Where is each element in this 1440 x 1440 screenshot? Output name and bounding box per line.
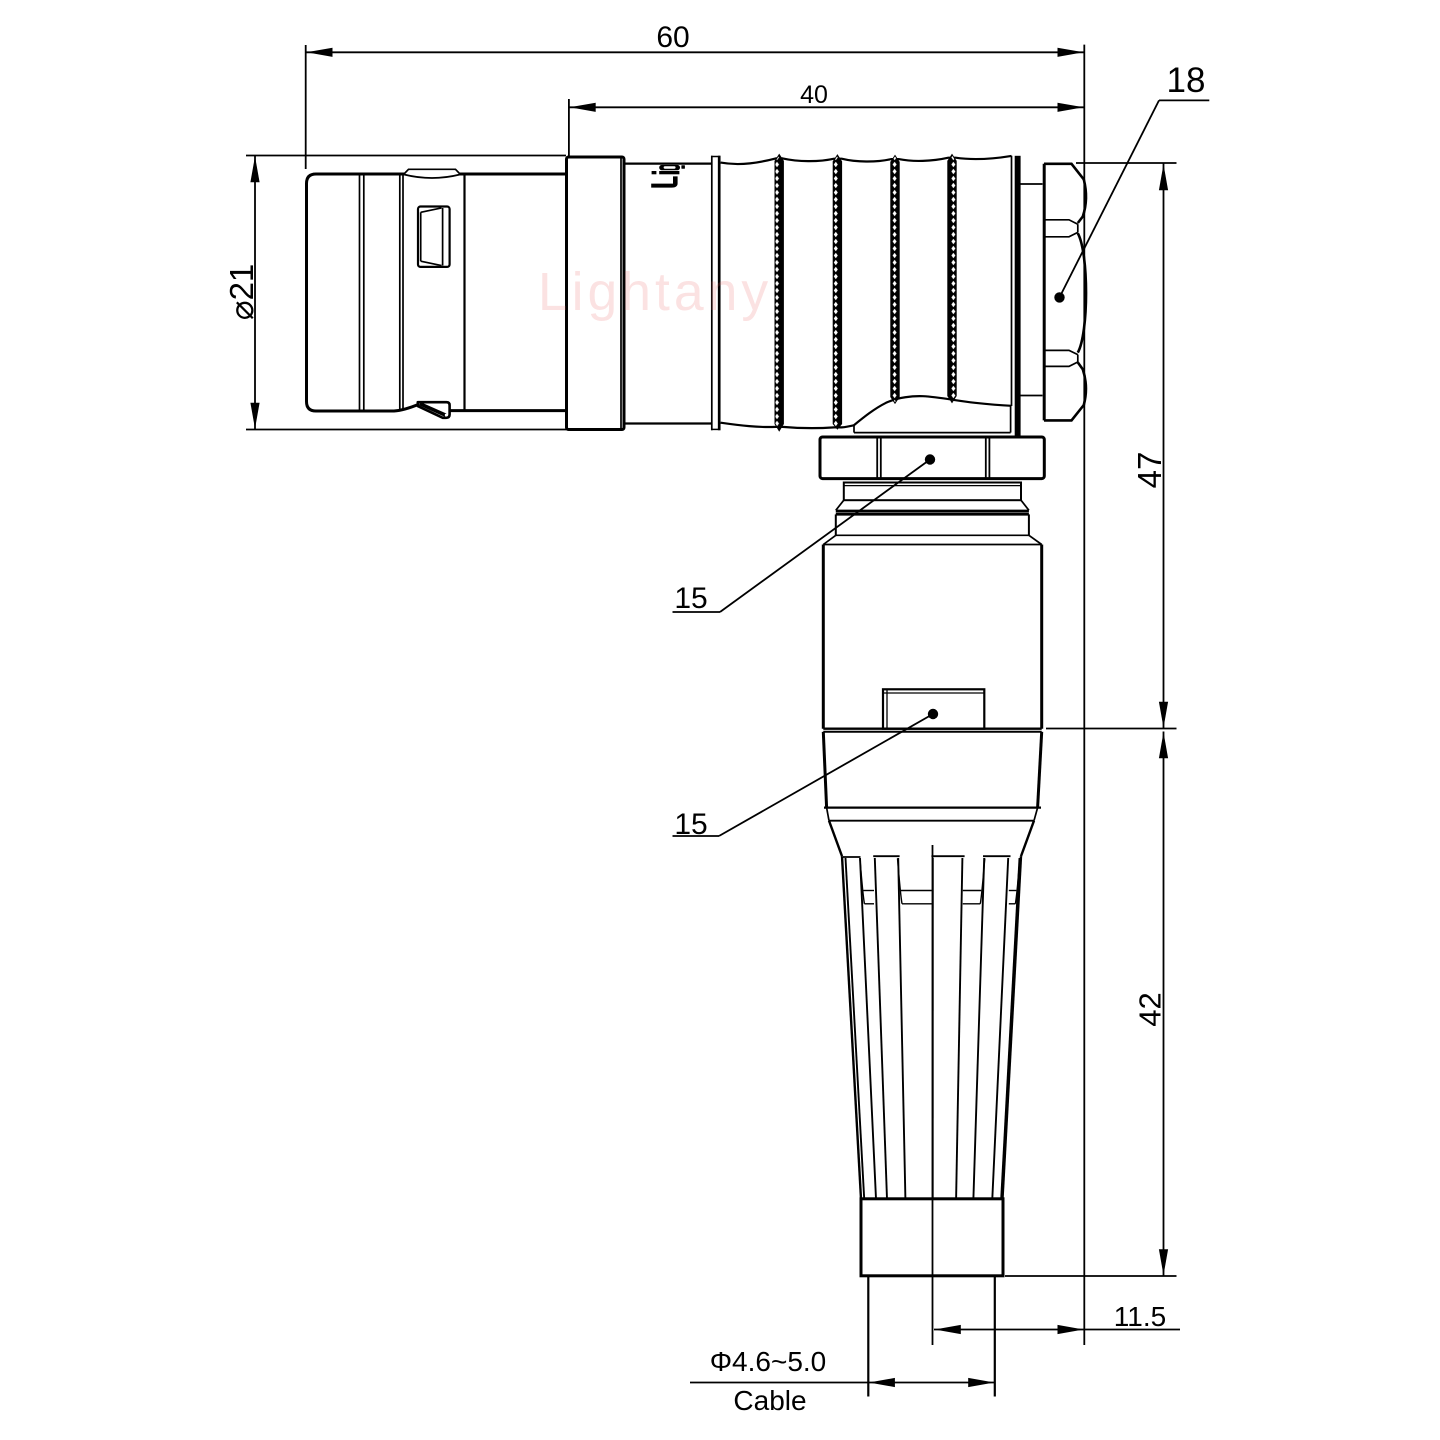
svg-text:42: 42 [1133, 992, 1168, 1026]
svg-text:18: 18 [1167, 61, 1206, 100]
svg-text:40: 40 [800, 81, 828, 109]
svg-text:⌀21: ⌀21 [223, 264, 260, 321]
svg-text:60: 60 [656, 21, 689, 54]
svg-text:11.5: 11.5 [1114, 1301, 1166, 1332]
svg-text:15: 15 [674, 582, 707, 615]
svg-text:47: 47 [1131, 452, 1168, 489]
svg-text:Φ4.6~5.0: Φ4.6~5.0 [710, 1346, 827, 1377]
svg-text:Lightany: Lightany [538, 263, 772, 322]
svg-text:Cable: Cable [733, 1385, 806, 1416]
